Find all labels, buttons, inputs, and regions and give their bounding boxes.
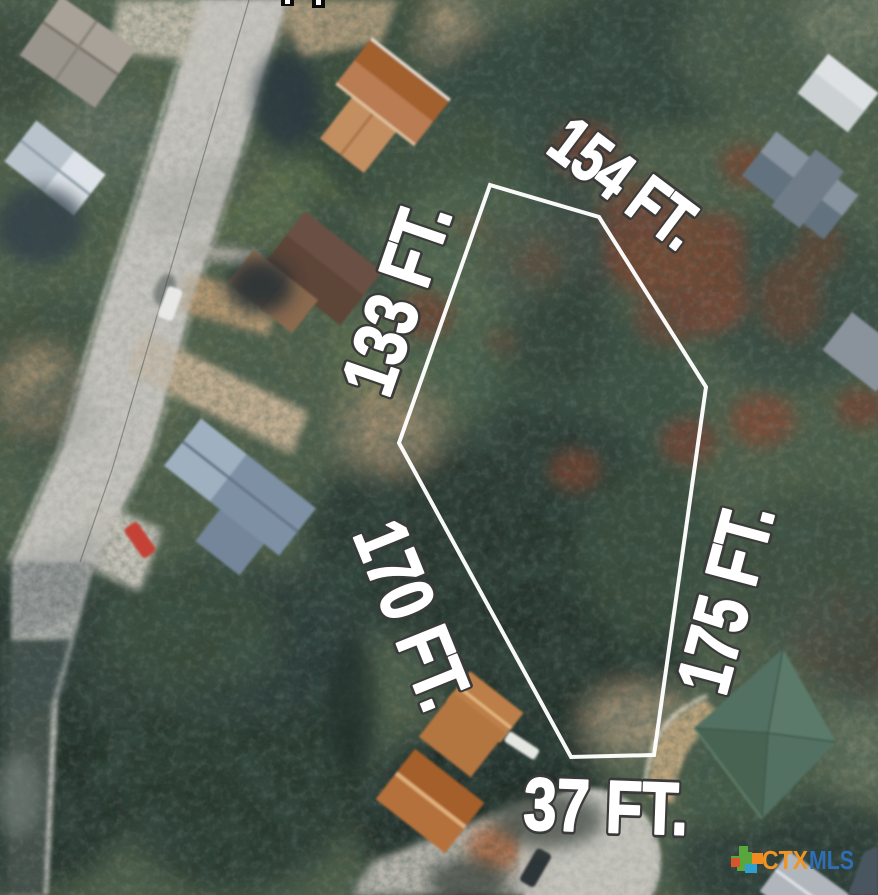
svg-text:MLS: MLS (809, 845, 854, 875)
svg-text:CTX: CTX (762, 845, 809, 875)
svg-text:37 FT.: 37 FT. (522, 763, 689, 852)
